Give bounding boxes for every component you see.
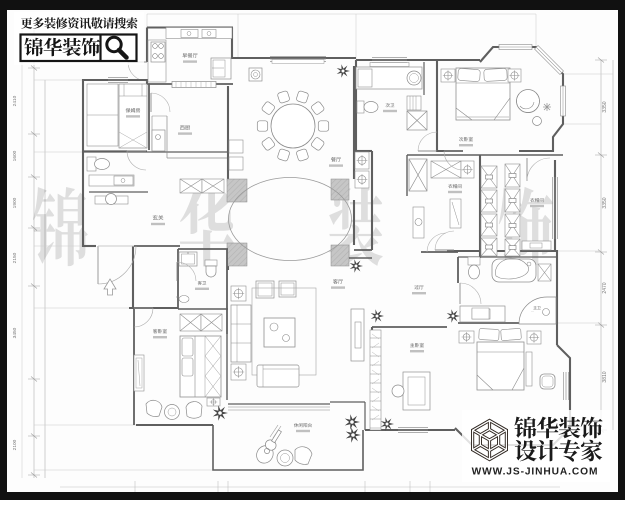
svg-text:3350: 3350 — [602, 197, 608, 208]
svg-text:2470: 2470 — [602, 282, 608, 293]
svg-text:...: ... — [531, 309, 534, 313]
svg-text:WWW.JS-JINHUA.COM: WWW.JS-JINHUA.COM — [472, 467, 599, 478]
svg-text:3450: 3450 — [12, 327, 18, 338]
svg-text:2150: 2150 — [12, 252, 18, 263]
svg-text:2100: 2100 — [12, 439, 18, 450]
svg-text:2410: 2410 — [12, 95, 18, 106]
svg-text:1600: 1600 — [12, 150, 18, 161]
svg-text:1900: 1900 — [12, 197, 18, 208]
svg-text:3350: 3350 — [602, 101, 608, 112]
svg-text:3810: 3810 — [602, 371, 608, 382]
